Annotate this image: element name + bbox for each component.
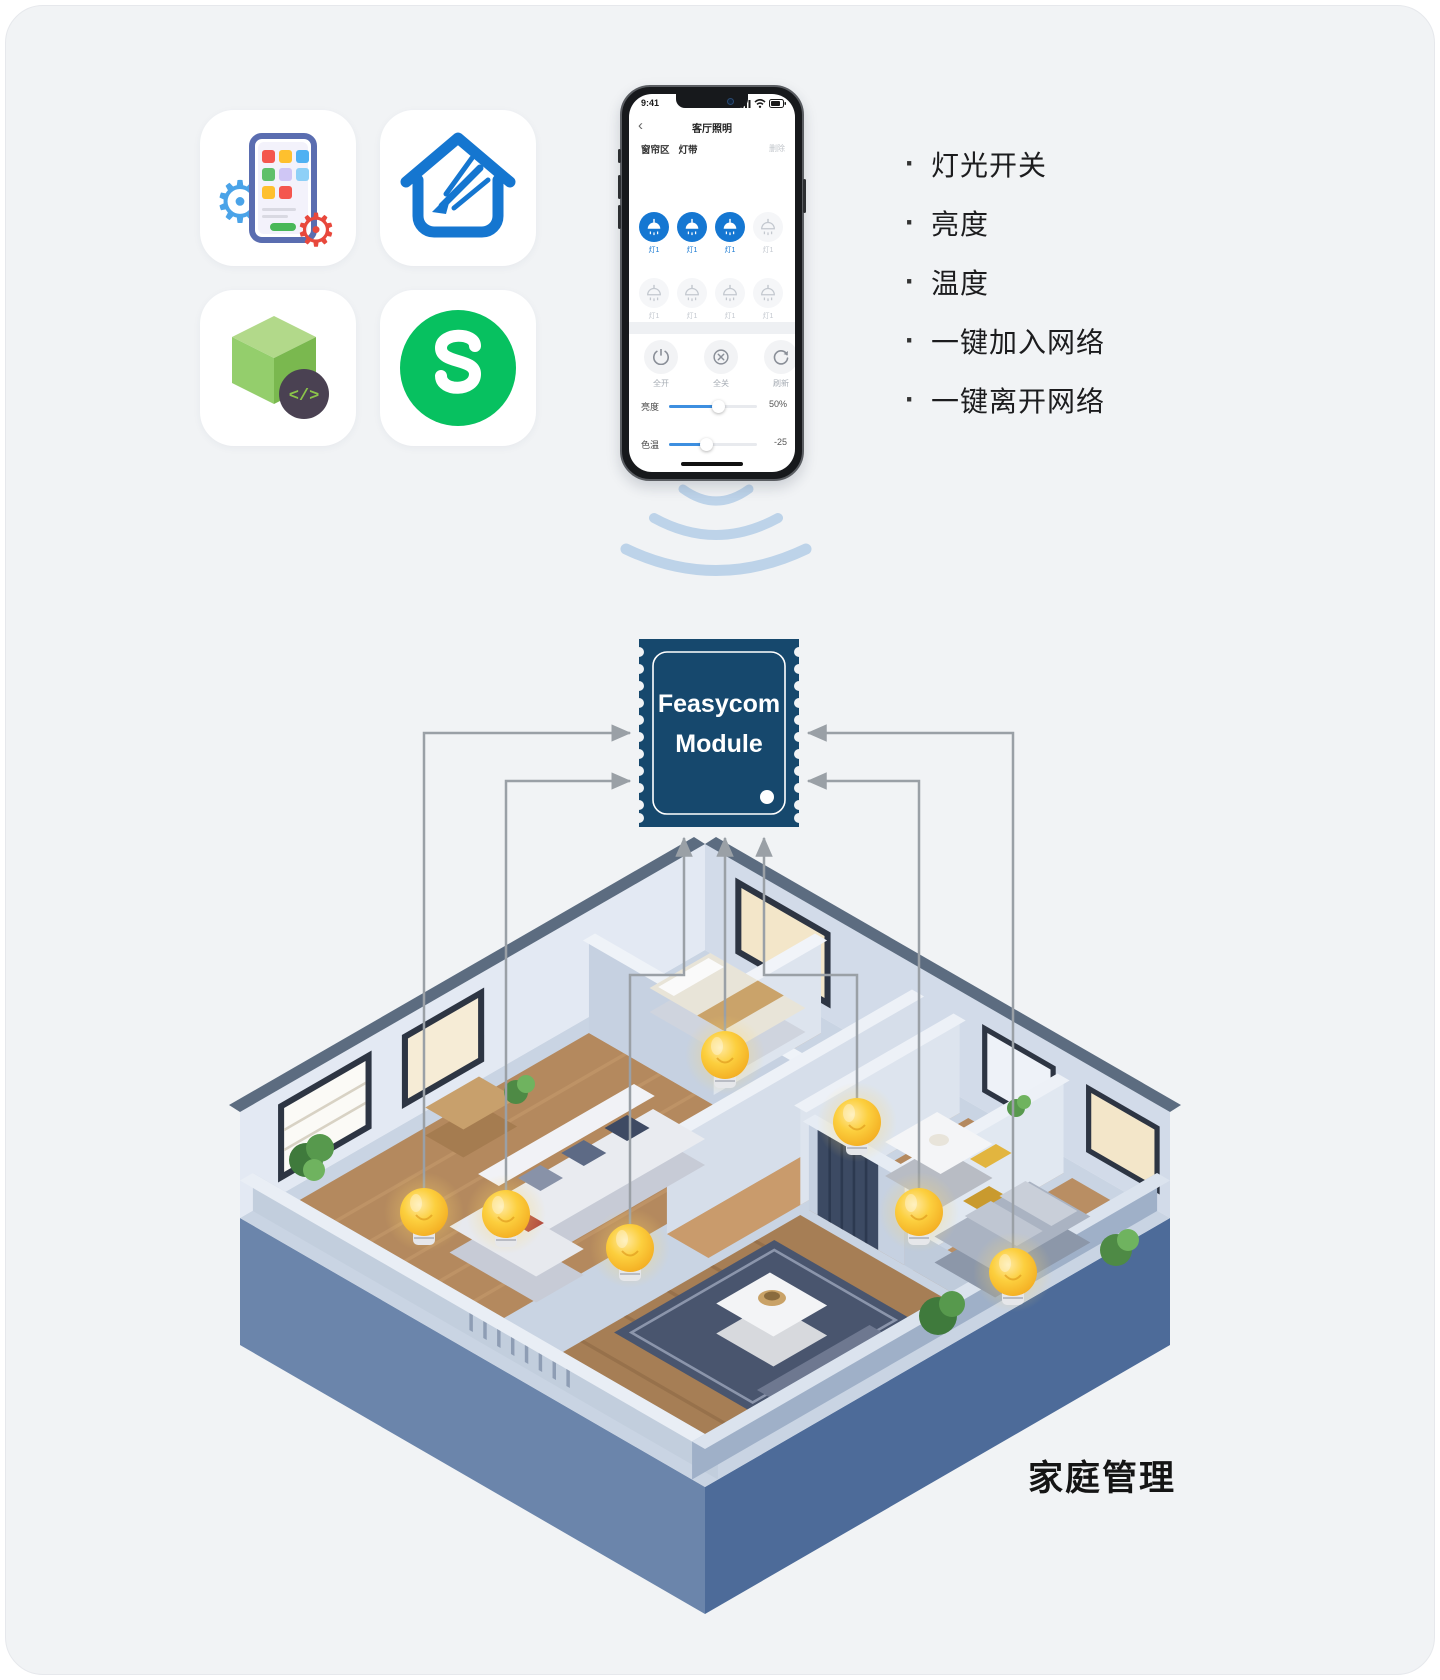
bulb-icon — [384, 1172, 464, 1252]
feature-label: 亮度 — [931, 203, 989, 243]
feature-label: 一键离开网络 — [931, 380, 1105, 420]
bullet-icon: · — [905, 206, 916, 240]
slider-knob[interactable] — [700, 438, 713, 451]
sdk-cube-icon: </> — [200, 290, 356, 446]
slider-knob[interactable] — [712, 400, 725, 413]
lamp-toggle[interactable]: 灯1 — [749, 278, 787, 321]
wechat-mini-program-icon — [380, 290, 536, 446]
lamp-toggle[interactable]: 灯1 — [673, 212, 711, 255]
phone-screen: 9:41 ‹ 客厅照明 — [629, 94, 795, 472]
lamp-label: 灯1 — [673, 245, 711, 255]
bullet-icon: · — [905, 265, 916, 299]
section-divider — [629, 322, 795, 334]
tile-wechat-mini-program — [380, 290, 536, 446]
nav-bar: ‹ 客厅照明 — [629, 116, 795, 138]
bullet-icon: · — [905, 147, 916, 181]
lamp-toggle[interactable]: 灯1 — [711, 212, 749, 255]
feature-item: ·一键加入网络 — [905, 321, 1105, 361]
camera-icon — [727, 98, 734, 105]
battery-icon — [769, 99, 786, 108]
refresh-button[interactable]: 刷新 — [764, 340, 795, 389]
feasycom-module: Feasycom Module — [634, 639, 804, 827]
tab-curtain-area[interactable]: 窗帘区 — [641, 142, 670, 156]
color-temp-slider[interactable] — [669, 443, 757, 446]
lamp-label: 灯1 — [711, 245, 749, 255]
house-caption: 家庭管理 — [1028, 1450, 1176, 1501]
bulb-icon — [590, 1208, 670, 1288]
feature-label: 一键加入网络 — [931, 321, 1105, 361]
tab-light-strip[interactable]: 灯带 — [679, 142, 698, 156]
feature-item: ·灯光开关 — [905, 144, 1047, 184]
phone-notch — [676, 94, 748, 108]
feature-item: ·亮度 — [905, 203, 989, 243]
lamp-circle-off[interactable] — [753, 212, 783, 242]
gear-icon: ⚙ — [295, 204, 336, 256]
bulb-icon — [466, 1174, 546, 1254]
page-title: 客厅照明 — [629, 120, 795, 135]
phone-mockup: 9:41 ‹ 客厅照明 — [620, 85, 804, 481]
circle-x-icon[interactable] — [704, 340, 738, 374]
tile-app-development: ⚙ ⚙ — [200, 110, 356, 266]
module-name-line2: Module — [675, 730, 763, 758]
bulb-icon — [973, 1232, 1053, 1312]
lamp-circle-off[interactable] — [639, 278, 669, 308]
tile-smart-home — [380, 110, 536, 266]
home-indicator[interactable] — [681, 462, 743, 466]
all-on-label: 全开 — [644, 378, 678, 389]
phone-volume-down — [618, 205, 621, 229]
app-development-icon: ⚙ ⚙ — [200, 110, 356, 266]
wifi-waves-icon — [626, 489, 806, 571]
all-on-button[interactable]: 全开 — [644, 340, 678, 389]
bulb-icon — [685, 1015, 765, 1095]
lamp-circle-on[interactable] — [715, 212, 745, 242]
phone-power-button — [803, 179, 806, 213]
lamp-label: 灯1 — [749, 311, 787, 321]
lamp-circle-off[interactable] — [677, 278, 707, 308]
module-name-line1: Feasycom — [658, 690, 780, 718]
status-time: 9:41 — [641, 98, 659, 108]
lamp-label: 灯1 — [711, 311, 749, 321]
brightness-slider-row: 亮度 50% — [629, 396, 795, 416]
smart-home-icon — [380, 110, 536, 266]
phone-mute-switch — [618, 149, 621, 163]
lamp-label: 灯1 — [673, 311, 711, 321]
tile-sdk-cube: </> — [200, 290, 356, 446]
lamp-label: 灯1 — [749, 245, 787, 255]
lamp-toggle[interactable]: 灯1 — [749, 212, 787, 255]
refresh-label: 刷新 — [764, 378, 795, 389]
color-temp-slider-row: 色温 -25 — [629, 434, 795, 454]
code-badge: </> — [289, 387, 320, 406]
feature-label: 温度 — [931, 262, 989, 302]
page: Feasycom Module ⚙ — [0, 0, 1440, 1680]
chip-pin1-dot — [760, 790, 774, 804]
color-temp-label: 色温 — [641, 438, 659, 451]
brightness-label: 亮度 — [641, 400, 659, 413]
lamp-circle-off[interactable] — [715, 278, 745, 308]
group-tabs: 窗帘区 灯带 — [641, 142, 698, 156]
lamp-circle-on[interactable] — [677, 212, 707, 242]
lamp-toggle[interactable]: 灯1 — [635, 212, 673, 255]
lamp-label: 灯1 — [635, 311, 673, 321]
power-icon[interactable] — [644, 340, 678, 374]
lamp-circle-on[interactable] — [639, 212, 669, 242]
bulb-icon — [817, 1082, 897, 1162]
feature-item: ·温度 — [905, 262, 989, 302]
lamp-toggle[interactable]: 灯1 — [635, 278, 673, 321]
lamp-toggle[interactable]: 灯1 — [673, 278, 711, 321]
bullet-icon: · — [905, 383, 916, 417]
wifi-icon — [754, 99, 766, 108]
all-off-button[interactable]: 全关 — [704, 340, 738, 389]
brightness-slider[interactable] — [669, 405, 757, 408]
lamp-label: 灯1 — [635, 245, 673, 255]
refresh-icon[interactable] — [764, 340, 795, 374]
color-temp-value: -25 — [774, 437, 787, 447]
feature-item: ·一键离开网络 — [905, 380, 1105, 420]
lamp-toggle[interactable]: 灯1 — [711, 278, 749, 321]
all-off-label: 全关 — [704, 378, 738, 389]
phone-volume-up — [618, 175, 621, 199]
brightness-value: 50% — [769, 399, 787, 409]
bullet-icon: · — [905, 324, 916, 358]
bulb-icon — [879, 1172, 959, 1252]
lamp-circle-off[interactable] — [753, 278, 783, 308]
arrow-head — [432, 192, 452, 214]
delete-action[interactable]: 删除 — [769, 143, 785, 154]
feature-label: 灯光开关 — [931, 144, 1047, 184]
